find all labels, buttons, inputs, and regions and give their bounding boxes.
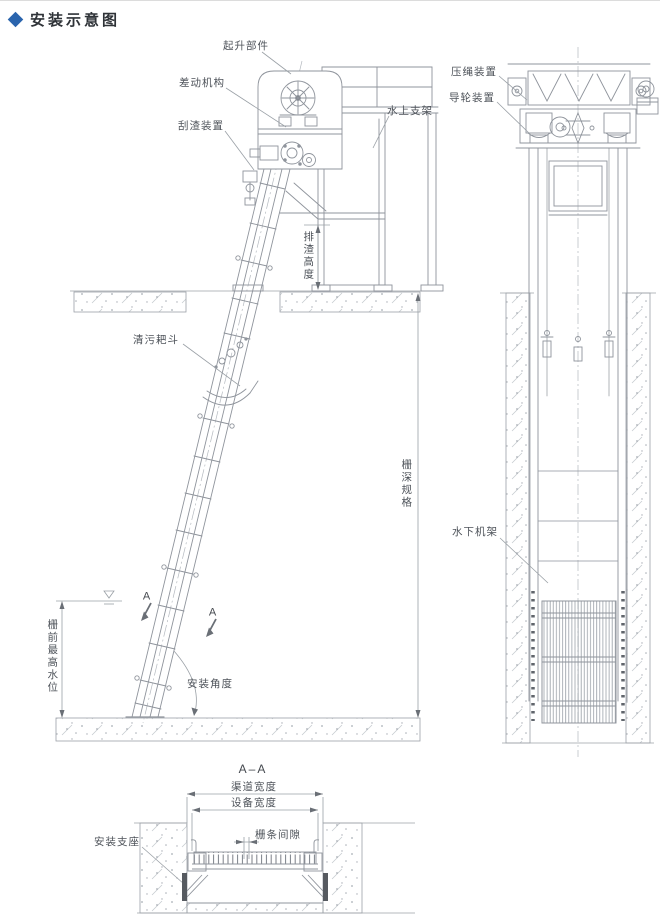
catalog-page: 安装示意图 — [0, 0, 660, 921]
label-hoist-part: 起升部件 — [223, 41, 269, 52]
label-rake-bucket: 清污耙斗 — [133, 335, 179, 346]
label-water-platform: 水上支架 — [387, 106, 433, 117]
label-differential: 差动机构 — [179, 78, 225, 89]
label-discharge-height: 排渣高度 — [303, 231, 314, 281]
label-rope-press: 压绳装置 — [451, 67, 497, 78]
section-mark-a2: A — [209, 608, 217, 619]
label-screen-depth: 栅深规格 — [401, 459, 412, 509]
label-mount-base: 安装支座 — [94, 837, 140, 848]
label-guide-wheel: 导轮装置 — [449, 93, 495, 104]
label-equipment-width: 设备宽度 — [231, 798, 277, 809]
label-max-water-level: 栅前最高水位 — [47, 619, 58, 694]
installation-drawing — [0, 1, 660, 921]
label-channel-width: 渠道宽度 — [231, 782, 277, 793]
label-underwater-frame: 水下机架 — [452, 527, 498, 538]
label-install-angle: 安装角度 — [187, 679, 233, 690]
label-scraper-device: 刮渣装置 — [178, 121, 224, 132]
label-bar-gap: 栅条间隙 — [255, 830, 301, 841]
section-title: A–A — [239, 763, 268, 775]
section-mark-a1: A — [143, 592, 151, 603]
